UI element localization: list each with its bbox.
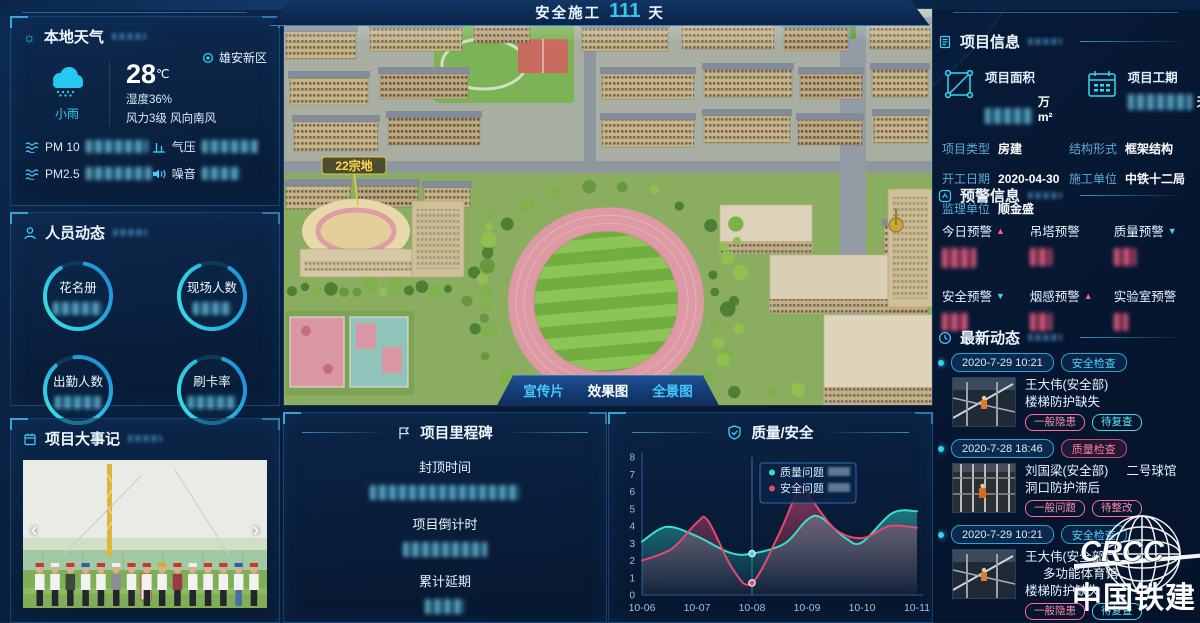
weather-panel-title: 本地天气 xyxy=(44,26,104,47)
milestone-panel-title: 项目里程碑 xyxy=(420,422,493,443)
location-icon xyxy=(202,52,214,64)
entry-date-pill: 2020-7-29 10:21 xyxy=(951,353,1054,372)
warning-label: 实验室预警 xyxy=(1114,286,1177,305)
svg-text:10-10: 10-10 xyxy=(849,602,876,614)
activity-entry[interactable]: 2020-7-29 10:21安全检查王大伟(安全部)楼梯防护缺失一般隐患待复查 xyxy=(938,353,1194,431)
project-milestone-panel: 项目里程碑 封顶时间项目倒计时累计延期 xyxy=(283,412,607,623)
activity-entry-body: 刘国梁(安全部)二号球馆洞口防护滞后一般问题待整改 xyxy=(938,458,1194,517)
weather-metric-label: PM 10 xyxy=(45,140,80,154)
svg-text:22宗地: 22宗地 xyxy=(335,158,372,173)
masked-value xyxy=(188,396,236,409)
safety-days-count: 111 xyxy=(609,0,640,23)
stat-project-area: 项目面积 万m² xyxy=(942,67,1061,124)
sun-icon: ☼ xyxy=(23,29,36,45)
alarm-bell-icon xyxy=(938,189,952,203)
timeline-dot-icon xyxy=(938,532,944,538)
stat-label: 项目面积 xyxy=(985,67,1061,86)
entry-person-line: 王大伟(安全部) xyxy=(1025,377,1149,394)
noise-icon xyxy=(152,168,166,180)
entry-tag-badge: 待复查 xyxy=(1092,414,1142,431)
entry-type-pill: 安全检查 xyxy=(1061,525,1127,544)
header-line xyxy=(1080,195,1182,196)
entry-date-pill: 2020-7-29 10:21 xyxy=(951,525,1054,544)
masked-value xyxy=(86,140,148,153)
pm10-icon xyxy=(25,141,39,153)
weather-metric: 气压 xyxy=(152,138,265,155)
stat-project-duration: 项目工期 天 xyxy=(1085,67,1200,124)
header-slant-left xyxy=(302,432,388,433)
warning-item: 质量预警▼ xyxy=(1114,221,1190,268)
svg-text:质量问题: 质量问题 xyxy=(780,466,824,479)
ring-label: 刷卡率 xyxy=(193,371,231,390)
stat-label: 项目工期 xyxy=(1128,67,1200,86)
warnings-panel: 预警信息 今日预警▲吊塔预警质量预警▼安全预警▼烟感预警▲实验室预警 xyxy=(938,176,1194,316)
svg-text:4: 4 xyxy=(629,522,635,533)
header-decor xyxy=(1028,38,1062,45)
trend-down-icon: ▼ xyxy=(996,291,1005,301)
activity-entry-text: 刘国梁(安全部)二号球馆洞口防护滞后一般问题待整改 xyxy=(1025,463,1176,517)
location-text: 雄安新区 xyxy=(219,49,267,66)
entry-tag-badge: 一般隐患 xyxy=(1025,414,1085,431)
view-tab-2[interactable]: 全景图 xyxy=(652,380,693,400)
entry-tag-badge: 一般隐患 xyxy=(1025,603,1085,620)
entry-place: 二号球馆 xyxy=(1126,463,1176,480)
svg-text:10-08: 10-08 xyxy=(739,602,766,614)
project-field: 结构形式框架结构 xyxy=(1069,140,1190,157)
warning-label-row: 安全预警▼ xyxy=(942,286,1030,305)
ring-content: 花名册 xyxy=(31,252,125,340)
personnel-ring: 花名册 xyxy=(31,252,125,340)
entry-person-line: 刘国梁(安全部)二号球馆 xyxy=(1025,463,1176,480)
header-slant-right xyxy=(823,432,909,433)
inspection-photo-thumbnail[interactable] xyxy=(952,463,1016,513)
header-decor xyxy=(1028,334,1062,341)
project-info-title: 项目信息 xyxy=(960,31,1020,52)
location-label: 雄安新区 xyxy=(202,49,267,66)
ring-label: 现场人数 xyxy=(187,277,237,296)
milestone-item: 累计延期 xyxy=(284,571,606,614)
calendar-icon xyxy=(1085,67,1119,101)
entry-person: 王大伟(安全部) xyxy=(1025,378,1108,392)
svg-text:5: 5 xyxy=(629,504,635,515)
view-tab-0[interactable]: 宣传片 xyxy=(523,380,564,400)
warning-label: 安全预警 xyxy=(942,286,992,305)
masked-value xyxy=(425,599,465,614)
entry-tags: 一般隐患待复查 xyxy=(1025,603,1194,620)
flag-icon xyxy=(397,426,411,440)
weather-condition: 小雨 xyxy=(25,105,109,122)
safety-days-unit: 天 xyxy=(648,2,665,23)
person-icon xyxy=(23,226,37,240)
personnel-panel-title: 人员动态 xyxy=(45,222,105,243)
inspection-photo-thumbnail[interactable] xyxy=(952,549,1016,599)
activity-entry-text: 王大伟(安全部)楼梯防护缺失一般隐患待复查 xyxy=(1025,377,1149,431)
activity-entry-header: 2020-7-29 10:21安全检查 xyxy=(938,353,1194,372)
view-tab-1[interactable]: 效果图 xyxy=(588,380,629,400)
masked-value xyxy=(53,302,103,315)
humidity: 湿度36% xyxy=(126,91,216,107)
timeline-dot-icon xyxy=(938,446,944,452)
warning-label: 今日预警 xyxy=(942,221,992,240)
clock-icon xyxy=(938,331,952,345)
svg-text:10-07: 10-07 xyxy=(684,602,711,614)
svg-text:2: 2 xyxy=(629,556,635,567)
chart-tooltip: 质量问题安全问题 xyxy=(760,463,856,503)
inspection-photo-thumbnail[interactable] xyxy=(952,377,1016,427)
activity-entry-body: 王大伟(安全部)楼梯防护缺失一般隐患待复查 xyxy=(938,372,1194,431)
masked-value xyxy=(403,542,487,557)
stat-unit: 万m² xyxy=(1038,93,1061,124)
masked-value xyxy=(1114,248,1136,266)
warning-label: 烟感预警 xyxy=(1030,286,1080,305)
masked-value xyxy=(370,485,520,500)
svg-text:1: 1 xyxy=(629,573,635,584)
masked-value xyxy=(985,108,1033,124)
weather-metric-label: PM2.5 xyxy=(45,167,80,181)
milestone-photo xyxy=(23,460,267,608)
entry-tags: 一般隐患待复查 xyxy=(1025,414,1149,431)
warning-label-row: 吊塔预警 xyxy=(1030,221,1114,240)
header-decor xyxy=(1028,192,1062,199)
ring-label: 出勤人数 xyxy=(53,371,103,390)
basketball-courts xyxy=(286,311,414,395)
masked-value xyxy=(86,167,152,180)
project-info-panel: 项目信息 项目面积 万m² xyxy=(938,22,1194,174)
entry-issue: 洞口防护滞后 xyxy=(1025,480,1176,497)
warning-label: 吊塔预警 xyxy=(1030,221,1080,240)
entry-person-line: 王大伟(安全部)多功能体育馆 xyxy=(1025,549,1194,583)
pm25-icon xyxy=(25,168,39,180)
activity-title: 最新动态 xyxy=(960,327,1020,348)
safety-title: 安全施工 xyxy=(535,2,601,23)
trend-up-icon: ▲ xyxy=(1084,291,1093,301)
weather-metric-label: 噪音 xyxy=(172,165,196,182)
svg-text:10-11: 10-11 xyxy=(904,602,930,614)
header-slant-left xyxy=(632,432,718,433)
entry-issue: 楼梯防护缺失 xyxy=(1025,583,1194,600)
masked-value xyxy=(55,396,101,409)
milestone-item: 项目倒计时 xyxy=(284,514,606,557)
weather-metric: PM2.5 xyxy=(25,165,152,182)
left-school-building xyxy=(300,199,464,277)
document-icon xyxy=(938,35,952,49)
warning-label-row: 今日预警▲ xyxy=(942,221,1030,240)
svg-text:7: 7 xyxy=(629,470,635,481)
header-wing-right xyxy=(953,12,1178,13)
masked-value xyxy=(202,140,258,153)
activity-entry[interactable]: 2020-7-29 10:21安全检查王大伟(安全部)多功能体育馆楼梯防护缺失一… xyxy=(938,525,1194,620)
pressure-icon xyxy=(152,141,166,153)
shield-check-icon xyxy=(727,425,742,440)
land-area-icon xyxy=(942,67,976,101)
masked-value xyxy=(1030,248,1052,266)
quality-safety-panel-title: 质量/安全 xyxy=(751,422,813,443)
entry-tag-badge: 待整改 xyxy=(1092,500,1142,517)
activity-entry[interactable]: 2020-7-28 18:46质量检查刘国梁(安全部)二号球馆洞口防护滞后一般问… xyxy=(938,439,1194,517)
project-field: 项目类型房建 xyxy=(942,140,1069,157)
activity-entry-header: 2020-7-29 10:21安全检查 xyxy=(938,525,1194,544)
header-line xyxy=(1080,337,1182,338)
entry-person: 刘国梁(安全部) xyxy=(1025,464,1108,478)
timeline-dot-icon xyxy=(938,360,944,366)
header-decor xyxy=(113,229,147,236)
entry-tags: 一般问题待整改 xyxy=(1025,500,1176,517)
milestone-item: 封顶时间 xyxy=(284,457,606,500)
svg-text:10-09: 10-09 xyxy=(794,602,821,614)
field-label: 项目类型 xyxy=(942,142,990,156)
warning-label-row: 烟感预警▲ xyxy=(1030,286,1114,305)
ring-label: 花名册 xyxy=(59,277,97,296)
quality-safety-chart[interactable]: 01234567810-0610-0710-0810-0910-1010-11质… xyxy=(610,443,931,621)
header-wing-left xyxy=(22,12,247,13)
masked-value xyxy=(942,248,976,268)
masked-value xyxy=(202,167,240,180)
milestone-item-label: 累计延期 xyxy=(284,571,606,590)
entry-tag-badge: 待复查 xyxy=(1092,603,1142,620)
entry-place: 多功能体育馆 xyxy=(1043,566,1118,583)
rain-cloud-icon xyxy=(44,63,90,99)
warning-label-row: 实验室预警 xyxy=(1114,286,1190,305)
warning-label: 质量预警 xyxy=(1114,221,1164,240)
site-render-view: 22宗地 宣传片效果图全景图 xyxy=(283,8,933,406)
entry-type-pill: 安全检查 xyxy=(1061,353,1127,372)
svg-text:6: 6 xyxy=(629,487,635,498)
personnel-panel: 人员动态 花名册现场人数出勤人数刷卡率 xyxy=(10,212,280,406)
entry-person: 王大伟(安全部) xyxy=(1025,550,1108,564)
header-decor xyxy=(112,33,146,40)
events-panel-title: 项目大事记 xyxy=(45,428,120,449)
activity-entry-text: 王大伟(安全部)多功能体育馆楼梯防护缺失一般隐患待复查 xyxy=(1025,549,1194,620)
warning-item: 吊塔预警 xyxy=(1030,221,1114,268)
entry-date-pill: 2020-7-28 18:46 xyxy=(951,439,1054,458)
warnings-title: 预警信息 xyxy=(960,185,1020,206)
ring-content: 现场人数 xyxy=(165,252,259,340)
weather-metric: PM 10 xyxy=(25,138,152,155)
masked-value xyxy=(1128,94,1192,110)
photo-prev-button[interactable]: ‹ xyxy=(25,518,43,544)
header-safety-days: 安全施工 111 天 xyxy=(270,0,930,26)
milestone-photo-panel: 项目大事记 ‹ › xyxy=(10,418,280,623)
trend-down-icon: ▼ xyxy=(1168,226,1177,236)
view-tabs: 宣传片效果图全景图 xyxy=(497,375,719,405)
quality-safety-panel: 质量/安全 01234567810-0610-0710-0810-0910-10… xyxy=(608,412,933,623)
field-label: 结构形式 xyxy=(1069,142,1117,156)
field-value: 房建 xyxy=(998,142,1022,156)
field-value: 框架结构 xyxy=(1125,142,1173,156)
stat-unit: 天 xyxy=(1197,93,1200,110)
wind: 风力3级 风向南风 xyxy=(126,110,216,126)
warning-label-row: 质量预警▼ xyxy=(1114,221,1190,240)
activity-entry-header: 2020-7-28 18:46质量检查 xyxy=(938,439,1194,458)
svg-text:安全问题: 安全问题 xyxy=(780,481,824,495)
svg-text:0: 0 xyxy=(629,591,635,602)
calendar-event-icon xyxy=(23,432,37,446)
milestone-item-label: 项目倒计时 xyxy=(284,514,606,533)
entry-type-pill: 质量检查 xyxy=(1061,439,1127,458)
warning-item: 今日预警▲ xyxy=(942,221,1030,268)
entry-issue: 楼梯防护缺失 xyxy=(1025,394,1149,411)
weather-metric: 噪音 xyxy=(152,165,265,182)
header-line xyxy=(1080,41,1182,42)
aerial-render-image: 22宗地 xyxy=(284,9,932,405)
masked-value xyxy=(193,302,231,315)
svg-text:3: 3 xyxy=(629,539,635,550)
milestone-item-label: 封顶时间 xyxy=(284,457,606,476)
header-decor xyxy=(128,435,162,442)
photo-next-button[interactable]: › xyxy=(247,518,265,544)
activity-entry-body: 王大伟(安全部)多功能体育馆楼梯防护缺失一般隐患待复查 xyxy=(938,544,1194,620)
personnel-ring: 现场人数 xyxy=(165,252,259,340)
activity-panel: 最新动态 2020-7-29 10:21安全检查王大伟(安全部)楼梯防护缺失一般… xyxy=(938,318,1194,621)
svg-text:8: 8 xyxy=(629,453,635,464)
weather-metric-label: 气压 xyxy=(172,138,196,155)
entry-tag-badge: 一般问题 xyxy=(1025,500,1085,517)
svg-text:10-06: 10-06 xyxy=(629,602,656,614)
trend-up-icon: ▲ xyxy=(996,226,1005,236)
header-slant-right xyxy=(502,432,588,433)
weather-panel: ☼ 本地天气 雄安新区 小雨 28℃ 湿度36% 风力3级 风向南风 xyxy=(10,16,280,206)
